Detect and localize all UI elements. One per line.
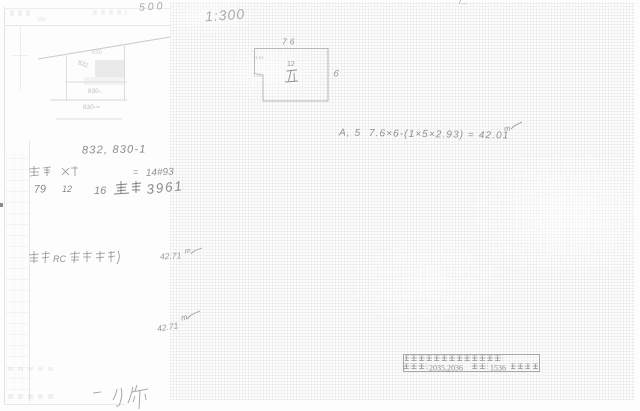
svg-text:RC: RC bbox=[53, 254, 66, 264]
svg-text:1.01: 1.01 bbox=[255, 55, 264, 60]
svg-text:79: 79 bbox=[33, 183, 46, 196]
svg-text:832: 832 bbox=[77, 59, 90, 69]
svg-text:12: 12 bbox=[62, 184, 72, 194]
svg-text:830-.: 830-. bbox=[88, 88, 103, 95]
svg-text:16: 16 bbox=[94, 185, 107, 197]
svg-text:14#93: 14#93 bbox=[146, 167, 175, 179]
svg-text:2035,2036: 2035,2036 bbox=[429, 364, 463, 373]
svg-text:3961: 3961 bbox=[146, 178, 185, 197]
svg-text:1.01: 1.01 bbox=[253, 73, 262, 78]
svg-text:830-=: 830-= bbox=[83, 104, 100, 111]
svg-text:76: 76 bbox=[282, 37, 297, 47]
svg-text:12: 12 bbox=[287, 61, 295, 68]
svg-text:830: 830 bbox=[92, 50, 103, 56]
svg-text:=: = bbox=[133, 167, 138, 177]
svg-text:6: 6 bbox=[332, 68, 340, 80]
svg-text:1536: 1536 bbox=[490, 364, 506, 373]
